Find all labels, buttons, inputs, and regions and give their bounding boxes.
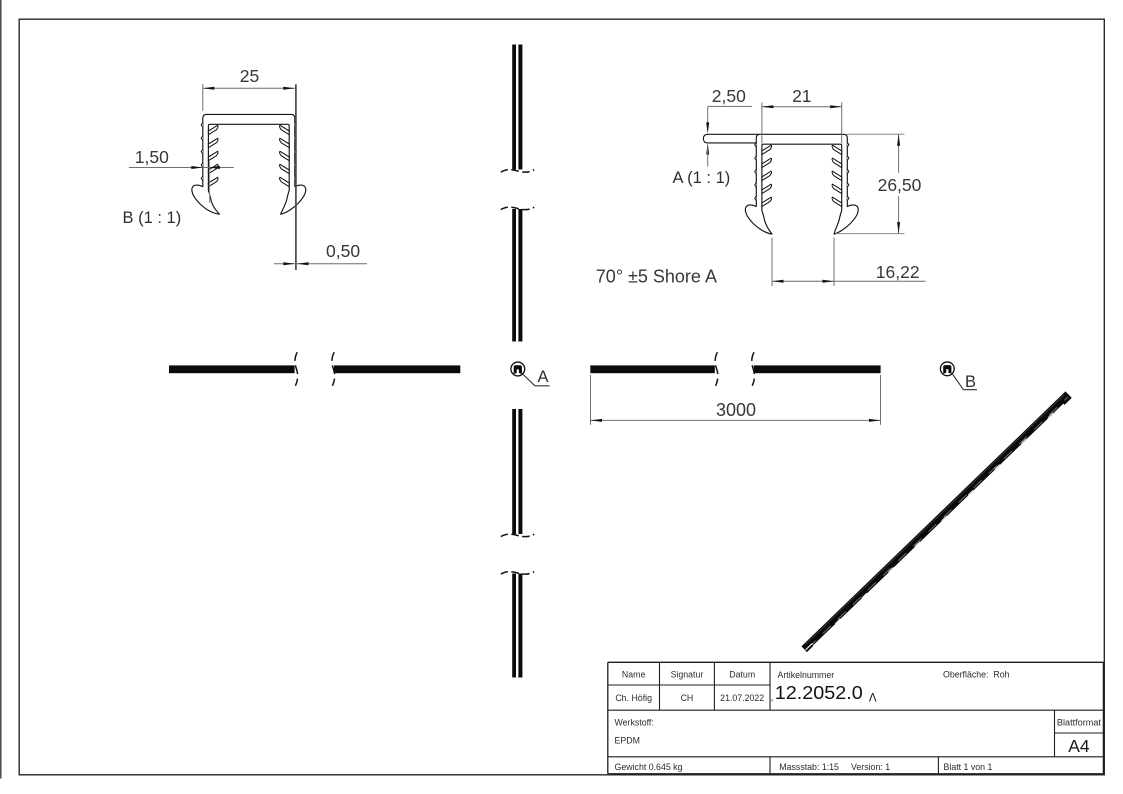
svg-text:21.07.2022: 21.07.2022 xyxy=(720,693,764,703)
svg-text:1,50: 1,50 xyxy=(135,147,169,167)
svg-text:Datum: Datum xyxy=(729,669,755,679)
svg-text:EPDM: EPDM xyxy=(615,736,640,746)
svg-text:2,50: 2,50 xyxy=(712,86,746,106)
svg-text:Version: 1: Version: 1 xyxy=(851,762,890,772)
svg-text:Ch. Höfig: Ch. Höfig xyxy=(615,693,652,703)
svg-text:Artikelnummer: Artikelnummer xyxy=(778,670,835,680)
svg-text:A: A xyxy=(537,368,548,386)
svg-text:A (1 : 1): A (1 : 1) xyxy=(673,169,731,187)
svg-text:Name: Name xyxy=(622,669,646,679)
svg-text:25: 25 xyxy=(240,66,259,86)
svg-text:Gewicht 0.645 kg: Gewicht 0.645 kg xyxy=(615,762,683,772)
svg-text:Massstab: 1:15: Massstab: 1:15 xyxy=(779,762,839,772)
svg-text:Oberfläche: Roh: Oberfläche: Roh xyxy=(943,670,1010,680)
svg-text:Signatur: Signatur xyxy=(671,669,704,679)
svg-text:,: , xyxy=(771,692,774,702)
svg-text:12.2052.0: 12.2052.0 xyxy=(775,682,863,703)
svg-text:A4: A4 xyxy=(1068,736,1090,756)
svg-text:Λ: Λ xyxy=(869,692,877,704)
svg-text:B (1 : 1): B (1 : 1) xyxy=(123,209,182,227)
svg-text:Werkstoff:: Werkstoff: xyxy=(615,717,654,727)
svg-text:16,22: 16,22 xyxy=(876,262,920,282)
svg-text:26,50: 26,50 xyxy=(878,175,922,195)
svg-text:21: 21 xyxy=(792,86,811,106)
svg-text:B: B xyxy=(965,373,976,391)
svg-text:0,50: 0,50 xyxy=(326,241,360,261)
svg-text:Blatt 1 von 1: Blatt 1 von 1 xyxy=(944,762,993,772)
svg-text:Blattformat: Blattformat xyxy=(1057,718,1102,728)
svg-text:70° ±5 Shore A: 70° ±5 Shore A xyxy=(596,267,717,287)
svg-text:CH: CH xyxy=(681,693,694,703)
svg-text:3000: 3000 xyxy=(716,400,756,420)
